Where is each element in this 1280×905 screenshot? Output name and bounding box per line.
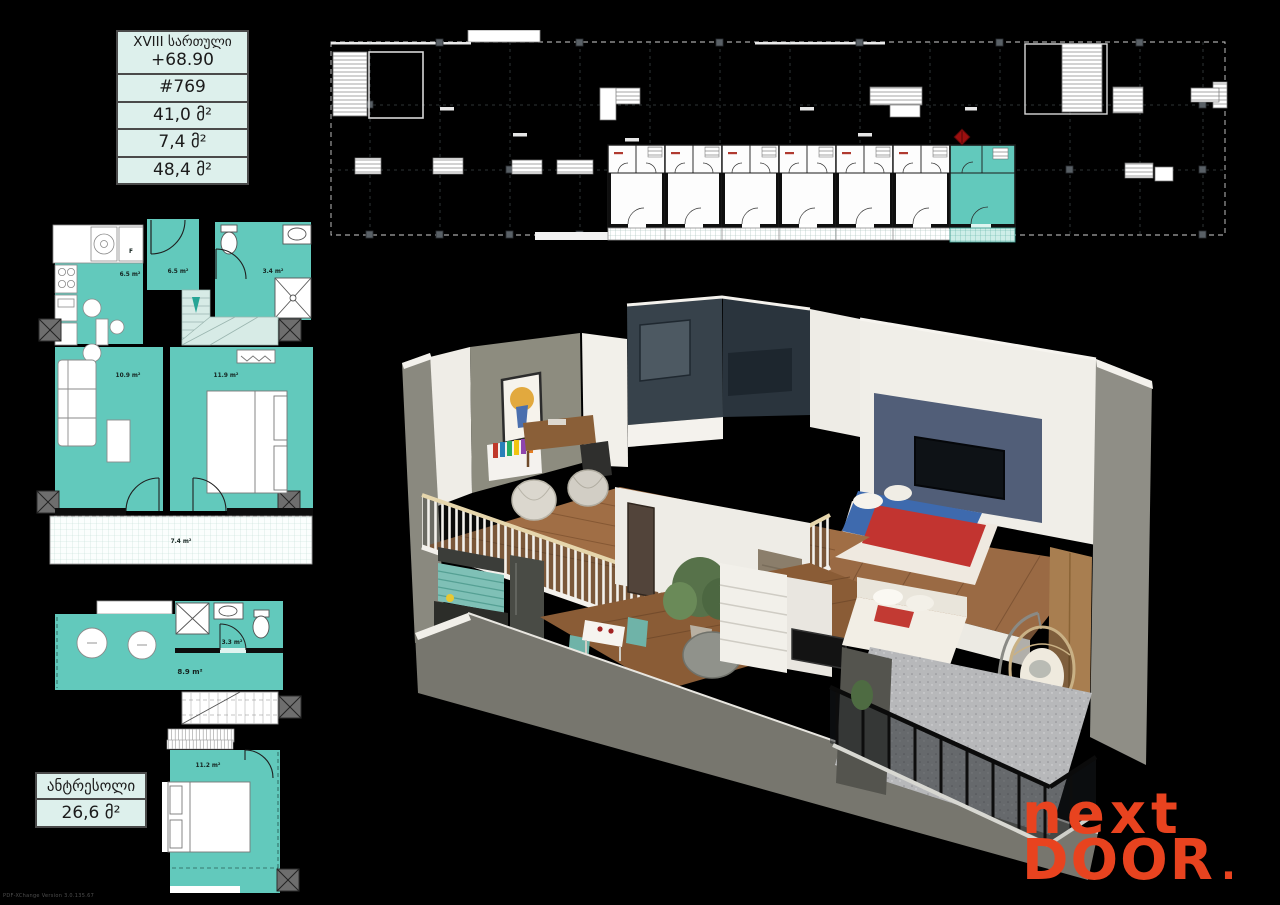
apartment-units-row <box>535 145 950 240</box>
unit-number: #769 <box>118 73 247 101</box>
mezz-bedroom-column <box>277 869 299 891</box>
balcony-area-label: 7.4 m² <box>171 538 192 545</box>
next-door-logo: next DOOR. <box>1022 792 1238 884</box>
highlighted-unit-balcony <box>950 228 1015 242</box>
floor-label: XVIII სართული <box>120 35 245 51</box>
hall-room <box>147 219 199 290</box>
mezzanine-bedroom-plan: 11.2 m² <box>160 726 315 905</box>
bath-area-label: 3.4 m² <box>263 268 284 275</box>
unit-info-table: XVIII სართული +68.90 #769 41,0 მ² 7,4 მ²… <box>116 30 249 185</box>
bathroom-block <box>627 297 810 447</box>
fridge-label: F <box>129 249 133 255</box>
mezzanine-title: ანტრესოლი <box>37 774 145 798</box>
area-inner: 41,0 მ² <box>118 101 247 129</box>
balcony-plant <box>851 680 873 710</box>
mezzanine-label-box: ანტრესოლი 26,6 მ² <box>35 772 147 828</box>
logo-line2: DOOR <box>1022 828 1215 893</box>
main-balcony: 7.4 m² <box>50 516 312 564</box>
highlighted-unit <box>950 129 1015 242</box>
mezz-bedroom-area-label: 11.2 m² <box>196 762 221 769</box>
interior-door <box>628 503 654 597</box>
brochure-page: XVIII სართული +68.90 #769 41,0 მ² 7,4 მ²… <box>0 0 1280 905</box>
mezz-bedroom-bed <box>168 782 250 852</box>
main-level-plan: 6.5 m² F 6.5 m² 3.4 m² <box>30 205 320 565</box>
area-balcony: 7,4 მ² <box>118 128 247 156</box>
living-area-label: 10.9 m² <box>116 372 141 379</box>
mezzanine-plan: 3.3 m² 8.9 m² <box>30 588 320 748</box>
kitchen-area-label: 6.5 m² <box>120 271 141 278</box>
pdf-watermark: PDF-XChange Version 3.0.135.67 <box>3 893 94 899</box>
logo-dot: . <box>1221 843 1238 889</box>
bedroom-area-label: 11.9 m² <box>214 372 239 379</box>
right-shell-wall <box>1090 359 1152 765</box>
elevation-value: +68.90 <box>120 51 245 71</box>
unit-marker-diamond <box>954 129 970 145</box>
mezzanine-area: 26,6 მ² <box>37 798 145 826</box>
hall-area-label: 6.5 m² <box>168 268 189 275</box>
mezz-room-area-label: 8.9 m² <box>177 668 202 676</box>
mezz-bath-area-label: 3.3 m² <box>222 639 243 646</box>
building-floor-plan <box>325 30 1230 245</box>
mezz-column <box>279 696 301 718</box>
mezzanine-room <box>55 614 175 690</box>
area-total: 48,4 მ² <box>118 156 247 184</box>
floor-row: XVIII სართული +68.90 <box>118 32 247 73</box>
